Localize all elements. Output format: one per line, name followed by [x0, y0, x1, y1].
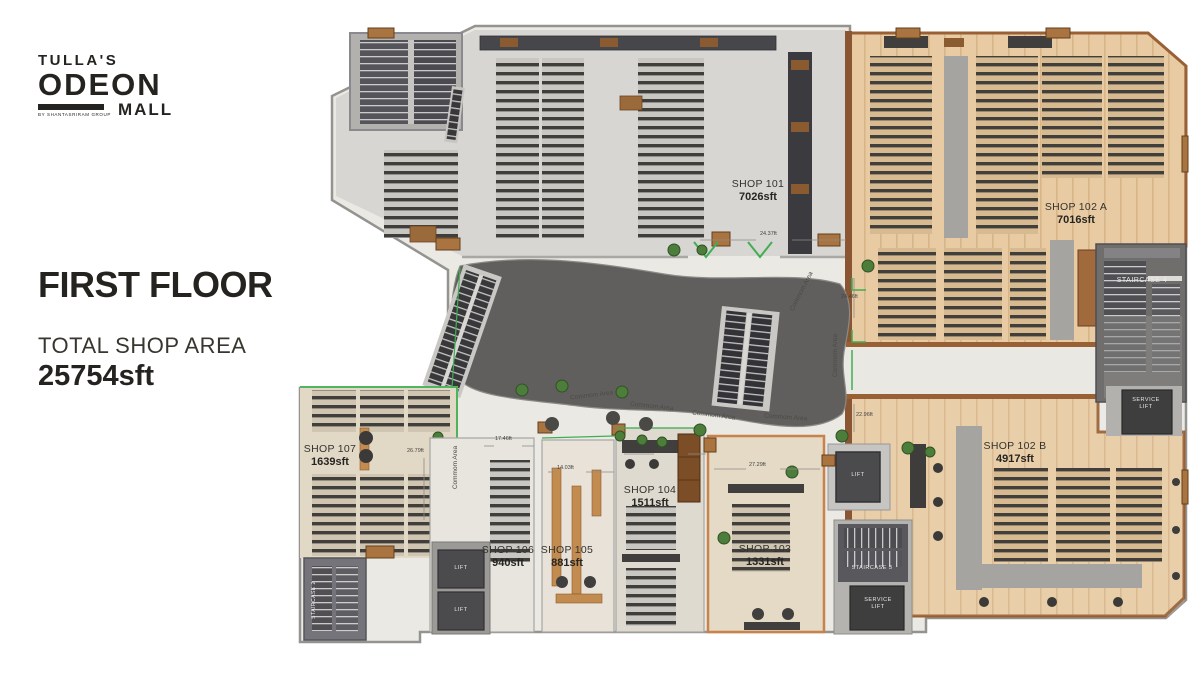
- total-area-caption: TOTAL SHOP AREA: [38, 333, 246, 359]
- brand-logo: TULLA'S ODEON BY SHANTASRIRAM GROUP MALL: [38, 52, 208, 120]
- shop-103-region: [708, 436, 824, 632]
- total-area-value: 25754sft: [38, 360, 154, 393]
- corridor: [846, 342, 1098, 399]
- brand-bar: [38, 104, 104, 110]
- brand-byline: BY SHANTASRIRAM GROUP: [38, 112, 111, 117]
- shop-105-region: [542, 440, 614, 632]
- shop-106-region: [430, 438, 534, 634]
- escalator-central: [712, 306, 780, 412]
- brand-name-mall: MALL: [118, 100, 173, 120]
- staircase-4-block: [1096, 244, 1186, 436]
- staircase-1-block: [350, 28, 462, 130]
- floor-plan-page: TULLA'S ODEON BY SHANTASRIRAM GROUP MALL…: [0, 0, 1200, 675]
- page-title: FIRST FLOOR: [38, 264, 272, 306]
- shop-104-region: [616, 428, 704, 632]
- brand-name-odeon: ODEON: [38, 69, 208, 102]
- lift-mid-block: [828, 444, 890, 510]
- staircase-3-block: [834, 520, 912, 634]
